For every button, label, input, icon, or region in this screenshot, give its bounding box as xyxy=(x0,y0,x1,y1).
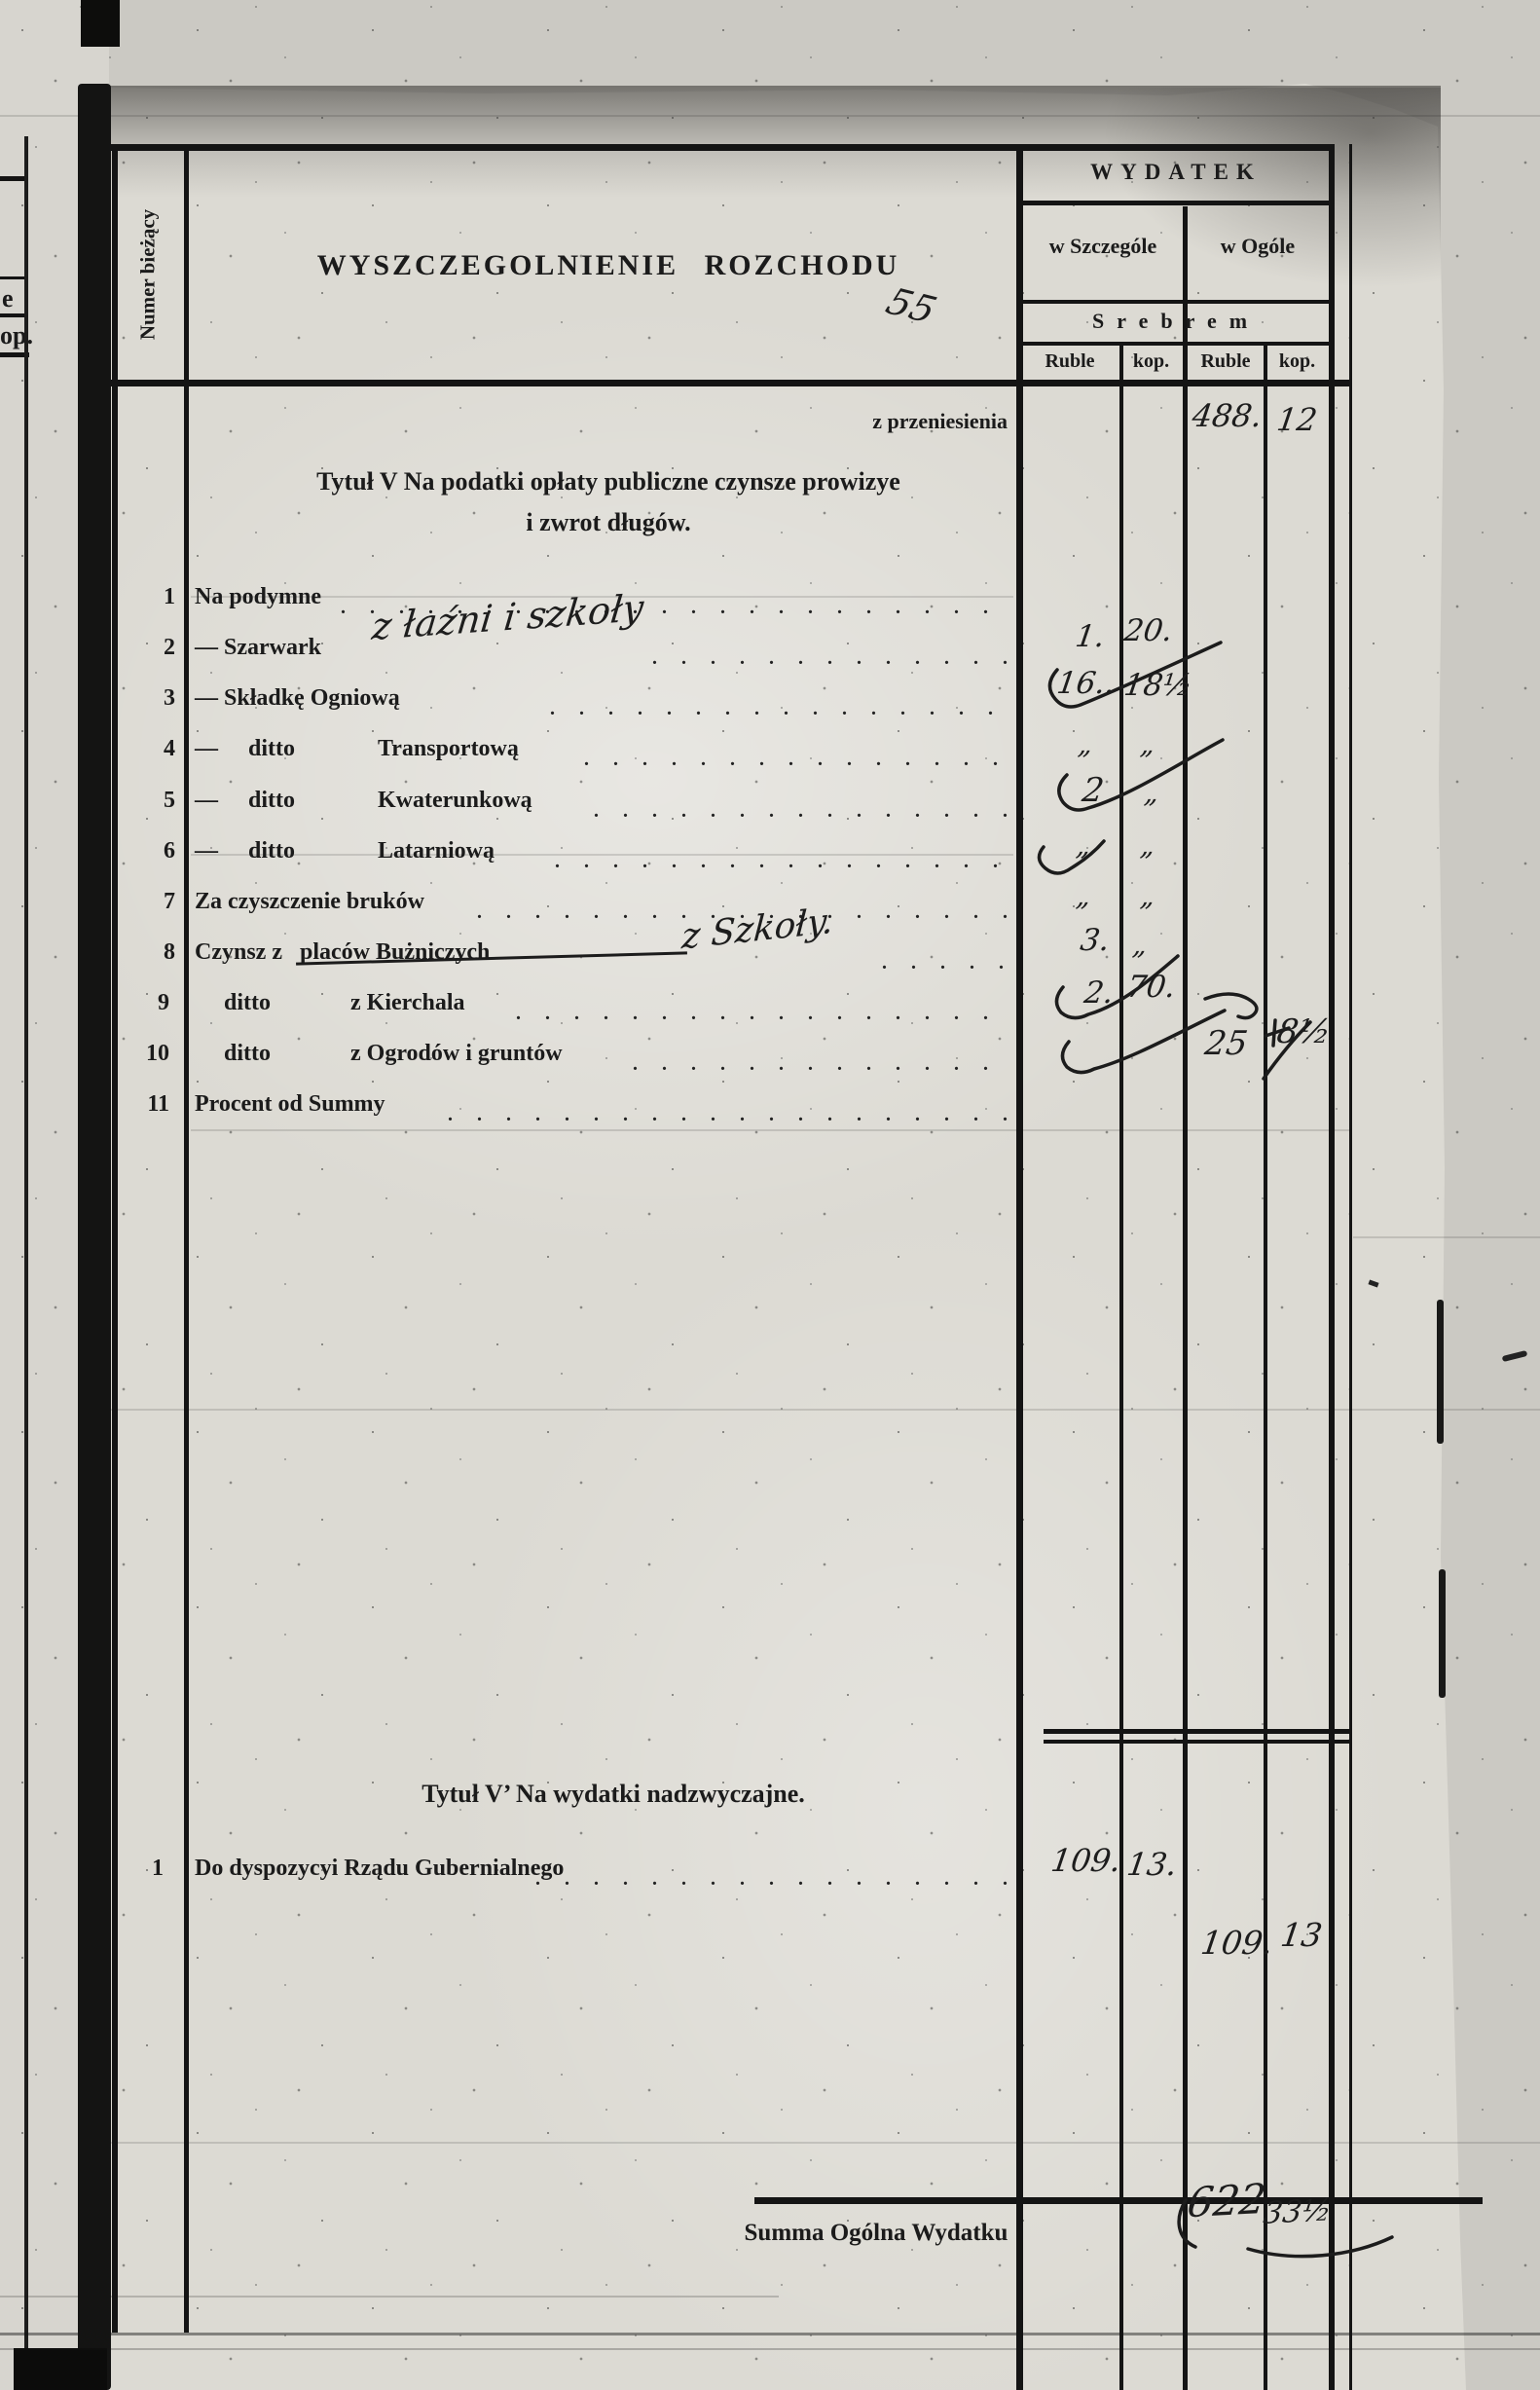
row-label: Do dyspozycyi Rządu Gubernialnego xyxy=(195,1856,564,1882)
total-ogole-kop: 13 xyxy=(1278,1916,1324,1954)
row-ditto: ditto xyxy=(224,990,271,1016)
leader-dots: . . . . . . . . . . . . . . . . . . . . … xyxy=(594,800,1012,823)
leader-dots: . . . . . . . . . . . . . . . . . . . . … xyxy=(555,851,1012,873)
value-szczegole-kop: 20. xyxy=(1121,613,1174,648)
value-szczegole-ruble: 2. xyxy=(1082,975,1116,1011)
leader-dots: . . . . . . . . . . . . . . . . . . . . … xyxy=(516,1003,1012,1025)
summary-label: Summa Ogólna Wydatku xyxy=(720,2220,1032,2247)
row-number: 5 xyxy=(117,788,175,814)
value-szczegole-ruble: 1. xyxy=(1073,619,1107,654)
subtotal-ogole-ruble: 25 xyxy=(1202,1024,1250,1063)
margin-line xyxy=(0,313,26,317)
value-szczegole-kop: 18½ xyxy=(1121,668,1194,703)
ogole-ruble-kop-divider xyxy=(1264,346,1267,2390)
table-row: — ditto Transportową . . . . . . . . . .… xyxy=(195,734,1012,775)
w-szczegole-header: w Szczególe xyxy=(1022,234,1184,259)
row-number: 1 xyxy=(105,1856,164,1882)
ruble-header-1: Ruble xyxy=(1020,350,1119,373)
row-label: Za czyszczenie bruków xyxy=(195,889,424,915)
kop-header-1: kop. xyxy=(1119,350,1183,373)
table-row: Za czyszczenie bruków . . . . . . . . . … xyxy=(195,887,1012,928)
table-row: Czynsz z placów Bużniczych . . . . . . .… xyxy=(195,938,1012,978)
row-ditto: ditto xyxy=(248,736,295,762)
description-money-divider xyxy=(1016,144,1023,2390)
section1-heading-line1: Tytuł V Na podatki opłaty publiczne czyn… xyxy=(204,467,1012,496)
row-label: z Kierchala xyxy=(350,990,465,1016)
carryover-label: z przeniesienia xyxy=(681,409,1008,434)
leader-dots: . . . . . . . . . . . . . . . . . . . . … xyxy=(535,1868,1012,1891)
gutter-bottom-blob xyxy=(14,2348,107,2390)
margin-vertical-line xyxy=(24,136,28,2390)
leader-dots: . . . . . . . . . . . . . . . . . . . . … xyxy=(550,698,1012,720)
row-number: 6 xyxy=(117,838,175,864)
value-szczegole-ruble: 16.. xyxy=(1054,666,1117,701)
value-szczegole-ruble: 3. xyxy=(1078,923,1112,958)
row-label: — Składkę Ogniową xyxy=(195,685,400,712)
row-label: — Szarwark xyxy=(195,635,321,661)
numer-column-line xyxy=(184,144,189,2333)
table-border-left xyxy=(112,144,118,2333)
table-row: ditto z Ogrodów i gruntów . . . . . . . … xyxy=(195,1039,1012,1080)
table-border-right-outer xyxy=(1349,144,1352,2390)
leader-dots: . . . . . . . . . . . . . . . . . . . . … xyxy=(652,647,1012,670)
scratch-line xyxy=(0,2348,1540,2350)
value-szczegole-kop: 70. xyxy=(1124,970,1177,1005)
kop-header-2: kop. xyxy=(1265,350,1329,373)
page-title: WYSZCZEGOLNIENIE ROZCHODU xyxy=(224,249,993,282)
wydatek-underline xyxy=(1020,201,1332,205)
row-number: 9 xyxy=(111,990,169,1016)
carryover-ruble: 488. xyxy=(1190,397,1265,434)
margin-line xyxy=(0,176,26,181)
row-dash: — xyxy=(195,788,218,814)
row-label: Czynsz z xyxy=(195,939,282,966)
ruble-header-2: Ruble xyxy=(1188,350,1264,373)
numer-biezacy-label: Numer bieżący xyxy=(136,209,161,340)
row-label: z Ogrodów i gruntów xyxy=(350,1041,563,1067)
leader-dots: . . . . . . . . . . . . . . . . . . . . … xyxy=(633,1053,1012,1076)
row-number: 8 xyxy=(117,939,175,966)
row-label: Na podymne xyxy=(195,584,321,610)
scanned-ledger-page: e op. Numer bieżący WYSZCZEGOLNIENIE ROZ xyxy=(0,0,1540,2390)
row-dash: — xyxy=(195,838,218,864)
table-border-right xyxy=(1329,144,1335,2390)
leader-dots: . . . . . . . . . . . . . . . . . . . . … xyxy=(448,1104,1012,1126)
summary-rule xyxy=(754,2197,1483,2204)
row-label: Kwaterunkową xyxy=(378,788,532,814)
value-szczegole-kop: 13. xyxy=(1124,1846,1179,1883)
section-rule-top xyxy=(1044,1729,1351,1734)
margin-line xyxy=(0,276,26,279)
table-row: — Składkę Ogniową . . . . . . . . . . . … xyxy=(195,683,1012,724)
row-number: 4 xyxy=(117,736,175,762)
section-rule-bottom xyxy=(1044,1740,1351,1744)
scratch-line xyxy=(109,2142,1540,2144)
summary-kop: 33½ xyxy=(1262,2192,1334,2231)
row-ditto: ditto xyxy=(248,788,295,814)
row-number: 2 xyxy=(117,635,175,661)
table-row: — ditto Kwaterunkową . . . . . . . . . .… xyxy=(195,786,1012,827)
section1-heading-line2: i zwrot długów. xyxy=(204,508,1012,537)
header-bottom-border xyxy=(109,380,1352,386)
binding-gutter xyxy=(78,84,111,2390)
table-row: ditto z Kierchala . . . . . . . . . . . … xyxy=(195,988,1012,1029)
total-ogole-ruble: 109. xyxy=(1198,1924,1275,1962)
w-ogole-header: w Ogóle xyxy=(1186,234,1330,259)
row-ditto: ditto xyxy=(248,838,295,864)
row-number: 11 xyxy=(111,1091,169,1118)
row-number: 1 xyxy=(117,584,175,610)
table-row: — Szarwark . . . . . . . . . . . . . . .… xyxy=(195,633,1012,674)
srebrem-underline xyxy=(1020,342,1332,346)
row-number: 3 xyxy=(117,685,175,712)
scratch-line xyxy=(0,2296,779,2298)
wydatek-header: WYDATEK xyxy=(1020,160,1332,185)
gutter-top-mark xyxy=(81,0,120,47)
szczegole-ruble-kop-divider xyxy=(1119,346,1123,2390)
leader-dots: . . . . . . . . . . . . . . . . . . . . … xyxy=(882,952,1012,974)
szczegole-ogole-divider xyxy=(1183,206,1188,2390)
row-dash: — xyxy=(195,736,218,762)
torn-edge-mark xyxy=(1437,1300,1444,1444)
row-ditto: ditto xyxy=(224,1041,271,1067)
summary-ruble: 622 xyxy=(1185,2175,1268,2227)
scratch-line xyxy=(0,115,1540,117)
margin-fragment-e: e xyxy=(2,284,14,313)
scratch-line xyxy=(1353,1236,1540,1238)
leader-dots: . . . . . . . . . . . . . . . . . . . . … xyxy=(584,749,1012,771)
subheader-underline xyxy=(1020,300,1332,304)
row-label: Procent od Summy xyxy=(195,1091,385,1118)
table-row: Do dyspozycyi Rządu Gubernialnego . . . … xyxy=(195,1854,1012,1894)
row-label: Transportową xyxy=(378,736,519,762)
scratch-line xyxy=(109,1409,1540,1411)
scratch-line xyxy=(0,2333,1540,2335)
srebrem-header: Srebrem xyxy=(1020,309,1332,334)
carryover-kop: 12 xyxy=(1274,401,1319,438)
value-szczegole-ruble: 109. xyxy=(1048,1842,1123,1879)
table-row: Procent od Summy . . . . . . . . . . . .… xyxy=(195,1089,1012,1130)
row-number: 7 xyxy=(117,889,175,915)
subtotal-ogole-kop: 8½ xyxy=(1274,1012,1333,1051)
section2-heading: Tytuł V’ Na wydatki nadzwyczajne. xyxy=(214,1780,1012,1809)
torn-edge-mark xyxy=(1439,1569,1446,1698)
table-row: — ditto Latarniową . . . . . . . . . . .… xyxy=(195,836,1012,877)
row-label: Latarniową xyxy=(378,838,495,864)
table-top-border xyxy=(109,144,1335,151)
row-number: 10 xyxy=(111,1041,169,1067)
